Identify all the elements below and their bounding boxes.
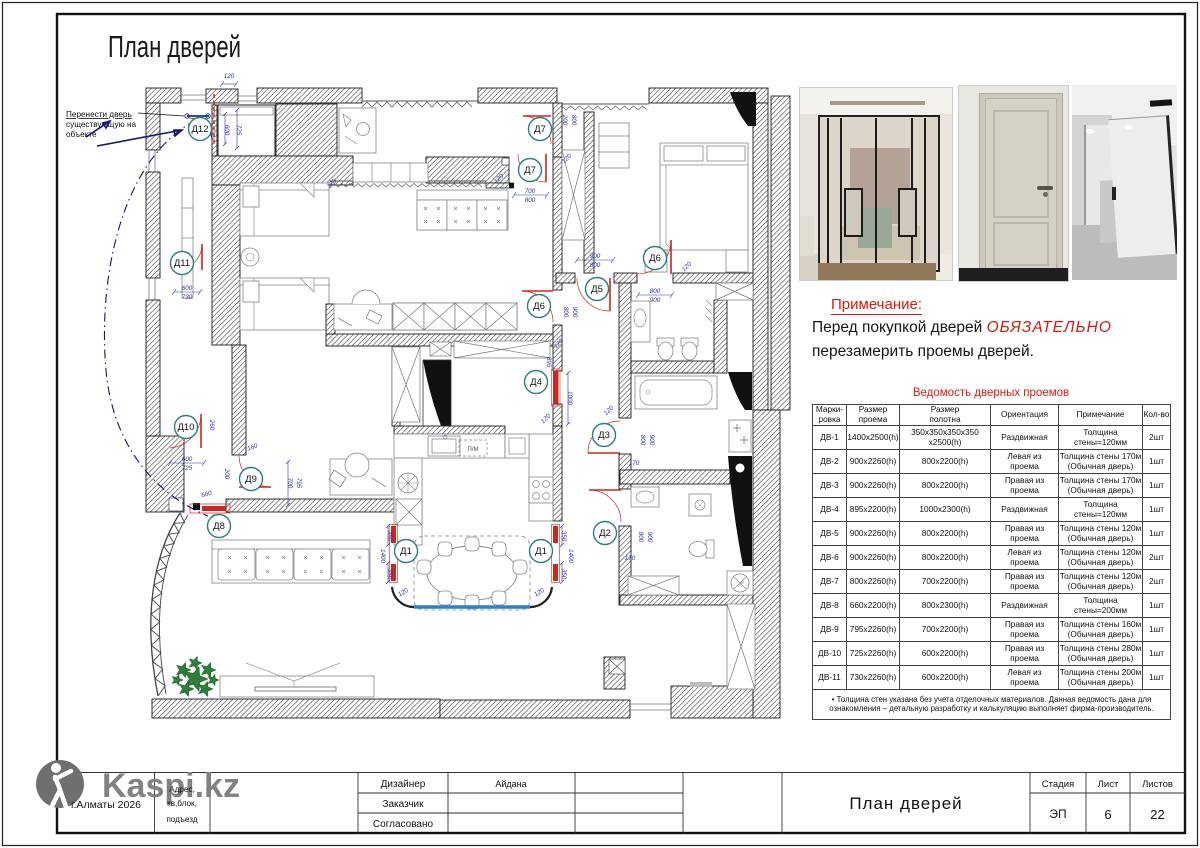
svg-text:200: 200 <box>561 114 568 126</box>
svg-text:1400: 1400 <box>567 549 574 564</box>
svg-text:объекте: объекте <box>66 130 97 139</box>
svg-text:Д7: Д7 <box>534 124 546 135</box>
svg-text:Д9: Д9 <box>245 474 257 485</box>
svg-text:795: 795 <box>295 478 302 489</box>
svg-text:22: 22 <box>1150 807 1164 822</box>
svg-text:Стадия: Стадия <box>1042 779 1074 790</box>
svg-text:900: 900 <box>648 435 655 446</box>
svg-text:900: 900 <box>646 532 653 543</box>
svg-text:730: 730 <box>182 294 193 301</box>
svg-text:600: 600 <box>182 285 193 292</box>
svg-text:700: 700 <box>525 188 536 195</box>
svg-text:Д4: Д4 <box>530 377 542 388</box>
svg-text:подъезд: подъезд <box>166 815 197 824</box>
svg-text:800: 800 <box>562 307 569 318</box>
svg-text:725: 725 <box>235 125 242 136</box>
svg-text:800: 800 <box>570 115 577 126</box>
svg-text:725: 725 <box>182 465 193 472</box>
svg-text:Д6: Д6 <box>649 253 661 264</box>
svg-text:260: 260 <box>208 419 215 431</box>
svg-text:ЭП: ЭП <box>1049 807 1066 821</box>
svg-text:170: 170 <box>629 460 640 467</box>
svg-text:Перенести дверь: Перенести дверь <box>66 110 132 119</box>
svg-text:170: 170 <box>625 555 636 562</box>
svg-text:Д10: Д10 <box>177 422 194 433</box>
svg-text:800: 800 <box>590 262 601 269</box>
svg-text:800: 800 <box>650 288 661 295</box>
svg-text:200: 200 <box>223 468 230 480</box>
svg-text:Д5: Д5 <box>591 284 603 295</box>
svg-text:350: 350 <box>386 569 393 580</box>
svg-text:Д2: Д2 <box>599 528 611 539</box>
svg-text:350: 350 <box>560 569 567 580</box>
svg-text:Айдана: Айдана <box>495 779 526 789</box>
svg-text:1400: 1400 <box>379 549 386 564</box>
svg-text:П/М: П/М <box>468 447 479 453</box>
svg-text:Д12: Д12 <box>191 124 208 135</box>
svg-text:Д11: Д11 <box>174 258 190 269</box>
svg-text:План дверей: План дверей <box>849 794 962 813</box>
svg-text:600: 600 <box>223 125 230 136</box>
svg-text:г.Алматы 2026: г.Алматы 2026 <box>71 799 141 811</box>
svg-text:700: 700 <box>286 478 293 489</box>
svg-text:Д7: Д7 <box>524 165 536 176</box>
svg-text:кв,блок,: кв,блок, <box>167 799 197 808</box>
svg-text:Дизайнер: Дизайнер <box>381 779 426 790</box>
svg-text:Лист: Лист <box>1098 779 1119 790</box>
svg-text:800: 800 <box>639 435 646 446</box>
svg-text:Адрес,: Адрес, <box>169 785 195 794</box>
svg-text:350: 350 <box>386 531 393 542</box>
svg-text:900: 900 <box>650 297 661 304</box>
svg-text:Согласовано: Согласовано <box>373 819 434 830</box>
svg-text:Д1: Д1 <box>535 546 547 557</box>
svg-text:Заказчик: Заказчик <box>382 799 424 810</box>
svg-text:900: 900 <box>590 253 601 260</box>
svg-text:895: 895 <box>545 357 552 368</box>
svg-text:Д3: Д3 <box>598 430 610 441</box>
svg-text:План дверей: План дверей <box>108 29 241 64</box>
svg-text:Листов: Листов <box>1142 779 1173 790</box>
svg-text:800: 800 <box>525 197 536 204</box>
svg-text:600: 600 <box>182 456 193 463</box>
svg-text:120: 120 <box>224 73 235 80</box>
svg-text:900: 900 <box>571 307 578 318</box>
svg-text:Д8: Д8 <box>213 521 225 532</box>
svg-text:6: 6 <box>1104 807 1111 822</box>
svg-text:Д6: Д6 <box>533 301 545 312</box>
svg-text:350: 350 <box>560 531 567 542</box>
svg-text:Д1: Д1 <box>400 546 412 557</box>
svg-text:800: 800 <box>637 532 644 543</box>
svg-text:1000: 1000 <box>566 391 573 406</box>
